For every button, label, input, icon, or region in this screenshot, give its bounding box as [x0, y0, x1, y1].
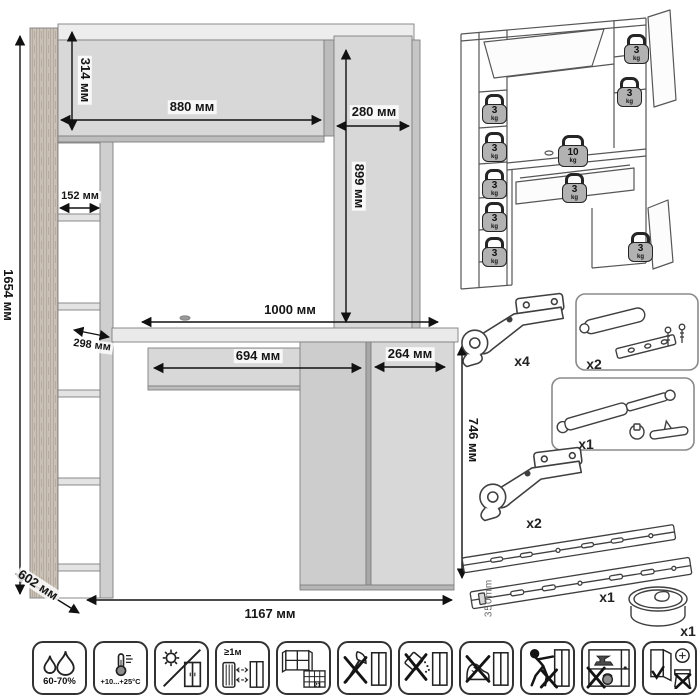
- axe-crossed-icon: [342, 648, 388, 688]
- wall-anchor-check-icon: [647, 647, 693, 689]
- gas-lift-icon: [552, 378, 694, 450]
- shoe-crossed-icon: [464, 648, 510, 688]
- load-weight: 3kg: [482, 202, 507, 232]
- thermometer-icon: [101, 651, 141, 677]
- dim-pedestal-width: 264 мм: [386, 347, 435, 361]
- dim-total-height: 1654 мм: [1, 267, 15, 323]
- hinge-x4-icon: [462, 293, 564, 366]
- radiator-wardrobe-icon: [221, 659, 265, 689]
- dim-shelf-width: 152 мм: [59, 191, 101, 203]
- load-weight: 3kg: [482, 237, 507, 267]
- cable-grommet-icon: [629, 587, 687, 626]
- no-overload-icon: [581, 641, 636, 695]
- no-pushing-icon: [520, 641, 575, 695]
- humidity-icon: 60-70%: [32, 641, 87, 695]
- load-weight: 3kg: [482, 132, 507, 162]
- hinge-x2-count: x2: [526, 515, 542, 531]
- load-weight: 3kg: [617, 77, 642, 107]
- dim-desktop-width: 1000 мм: [262, 303, 318, 317]
- dim-desk-height: 746 мм: [466, 416, 480, 465]
- furniture-assembly-diagram: 1654 мм 314 мм 880 мм 280 мм 899 мм 152 …: [0, 0, 700, 700]
- wall-mount-required-icon: [642, 641, 697, 695]
- gas-lift-count: x1: [578, 436, 594, 452]
- dim-drawer-width: 694 мм: [234, 349, 283, 363]
- no-liquids-icon: [398, 641, 453, 695]
- load-weight: 10kg: [558, 135, 588, 167]
- temperature-value: +10...+25°C: [100, 678, 140, 686]
- humidity-value: 60-70%: [43, 677, 76, 687]
- dim-hutch-width: 880 мм: [168, 100, 217, 114]
- dim-cabinet-width: 280 мм: [350, 105, 399, 119]
- water-drops-icon: [38, 650, 82, 676]
- ventilation-icon: 21: [276, 641, 331, 695]
- load-weight: 3kg: [628, 232, 653, 262]
- no-direct-sunlight-icon: [154, 641, 209, 695]
- load-weight: 3kg: [562, 173, 587, 203]
- dim-total-width: 1167 мм: [242, 607, 297, 621]
- calendar-day-value: 21: [314, 683, 321, 690]
- no-climbing-icon: [459, 641, 514, 695]
- hinge-x2-icon: [480, 447, 582, 520]
- person-pushing-crossed-icon: [525, 647, 571, 689]
- dim-cabinet-height: 899 мм: [352, 162, 366, 211]
- grommet-count: x1: [680, 623, 696, 639]
- anvil-in-cabinet-crossed-icon: [586, 647, 632, 689]
- load-weight: 3kg: [482, 94, 507, 124]
- heat-distance-icon: ≥1м: [215, 641, 270, 695]
- damper-count: x2: [586, 356, 602, 372]
- load-weight: 3kg: [624, 34, 649, 64]
- sun-wardrobe-icon: [160, 647, 204, 689]
- hinge-x4-count: x4: [514, 353, 530, 369]
- dim-hutch-height: 314 мм: [78, 56, 92, 105]
- temperature-icon: +10...+25°C: [93, 641, 148, 695]
- slides-count: x1: [599, 589, 615, 605]
- slides-length-label: 350mm: [484, 579, 495, 617]
- spill-crossed-icon: [403, 648, 449, 688]
- min-distance-value: ≥1м: [224, 648, 242, 658]
- load-weight: 3kg: [482, 169, 507, 199]
- no-sharp-impact-icon: [337, 641, 392, 695]
